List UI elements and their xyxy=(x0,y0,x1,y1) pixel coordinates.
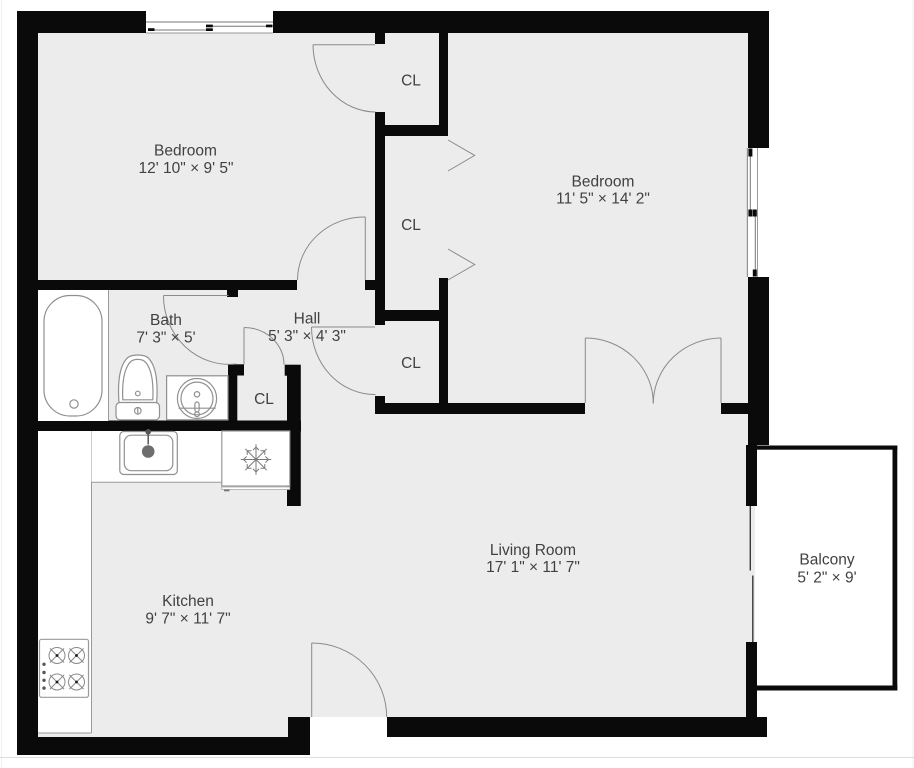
svg-text:Living Room: Living Room xyxy=(490,542,576,559)
svg-text:5' 3" × 4' 3": 5' 3" × 4' 3" xyxy=(268,328,346,345)
svg-text:CL: CL xyxy=(254,391,274,408)
svg-text:Bath: Bath xyxy=(150,312,182,329)
svg-text:Hall: Hall xyxy=(294,311,321,328)
svg-text:Bedroom: Bedroom xyxy=(572,174,635,191)
svg-text:11' 5" × 14' 2": 11' 5" × 14' 2" xyxy=(556,191,650,208)
svg-text:Balcony: Balcony xyxy=(799,552,854,569)
svg-text:Kitchen: Kitchen xyxy=(162,593,214,610)
svg-text:17' 1" × 11' 7": 17' 1" × 11' 7" xyxy=(486,559,580,576)
svg-text:7' 3" × 5': 7' 3" × 5' xyxy=(136,330,195,347)
svg-text:12' 10" × 9' 5": 12' 10" × 9' 5" xyxy=(139,160,234,177)
svg-text:CL: CL xyxy=(401,355,421,372)
svg-text:9' 7" × 11' 7": 9' 7" × 11' 7" xyxy=(145,611,230,628)
svg-text:Bedroom: Bedroom xyxy=(154,143,217,160)
svg-text:5' 2" × 9': 5' 2" × 9' xyxy=(797,570,856,587)
svg-text:CL: CL xyxy=(401,217,421,234)
svg-text:CL: CL xyxy=(401,73,421,90)
